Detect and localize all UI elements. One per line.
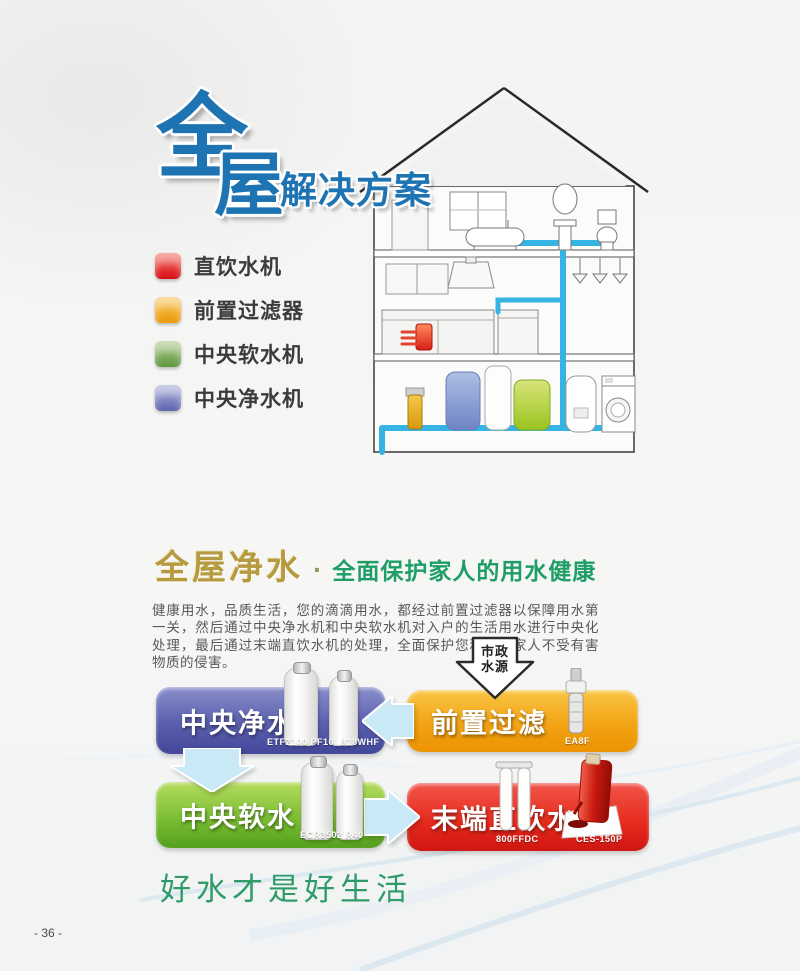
municipal-source-label: 市政 水源 bbox=[455, 644, 535, 674]
legend-swatch-purple bbox=[155, 385, 181, 411]
hero-subtitle: 解决方案 bbox=[280, 172, 432, 209]
municipal-source-line2: 水源 bbox=[455, 659, 535, 674]
brochure-page: 全 屋 解决方案 直饮水机 前置过滤器 中央软水机 中央净水机 bbox=[0, 0, 800, 971]
arrow-down-icon bbox=[170, 748, 254, 792]
model-label-ea8f: EA8F bbox=[565, 736, 590, 746]
legend-swatch-green bbox=[155, 341, 181, 367]
legend: 直饮水机 前置过滤器 中央软水机 中央净水机 bbox=[155, 252, 304, 428]
section-heading-gold: 全屋净水 bbox=[155, 540, 303, 589]
legend-swatch-orange bbox=[155, 297, 181, 323]
section-heading: 全屋净水 · 全面保护家人的用水健康 bbox=[155, 540, 596, 589]
flow-step-label: 中央净水 bbox=[180, 701, 296, 740]
legend-item-prefilter: 前置过滤器 bbox=[155, 296, 304, 323]
model-label-ecr3502: ECR3502 R40 bbox=[300, 830, 364, 840]
section-heading-dot: · bbox=[313, 554, 322, 586]
municipal-source-line1: 市政 bbox=[455, 644, 535, 659]
slogan-text: 好水才是好生活 bbox=[160, 864, 412, 909]
legend-swatch-red bbox=[155, 253, 181, 279]
model-label-800ffdc: 800FFDC bbox=[496, 834, 539, 844]
model-label-818whf: 818WHF bbox=[341, 737, 380, 747]
model-label-etf2100: ETF2100 PF10 bbox=[267, 737, 334, 747]
legend-label: 直饮水机 bbox=[194, 251, 282, 281]
flow-step-label: 中央软水 bbox=[180, 796, 296, 835]
legend-label: 前置过滤器 bbox=[194, 295, 304, 325]
page-number: - 36 - bbox=[34, 926, 62, 940]
model-label-ces150p: CES-150P bbox=[576, 834, 623, 844]
house-illustration bbox=[358, 80, 650, 462]
section-heading-green: 全面保护家人的用水健康 bbox=[332, 552, 596, 586]
legend-label: 中央软水机 bbox=[194, 339, 304, 369]
hero-title-char-wu: 屋 bbox=[214, 150, 284, 220]
legend-item-purifier: 中央净水机 bbox=[155, 384, 304, 411]
legend-label: 中央净水机 bbox=[194, 383, 304, 413]
legend-item-drinking: 直饮水机 bbox=[155, 252, 304, 279]
flow-step-label: 前置过滤 bbox=[431, 702, 547, 741]
legend-item-softener: 中央软水机 bbox=[155, 340, 304, 367]
arrow-right-icon bbox=[364, 790, 420, 844]
